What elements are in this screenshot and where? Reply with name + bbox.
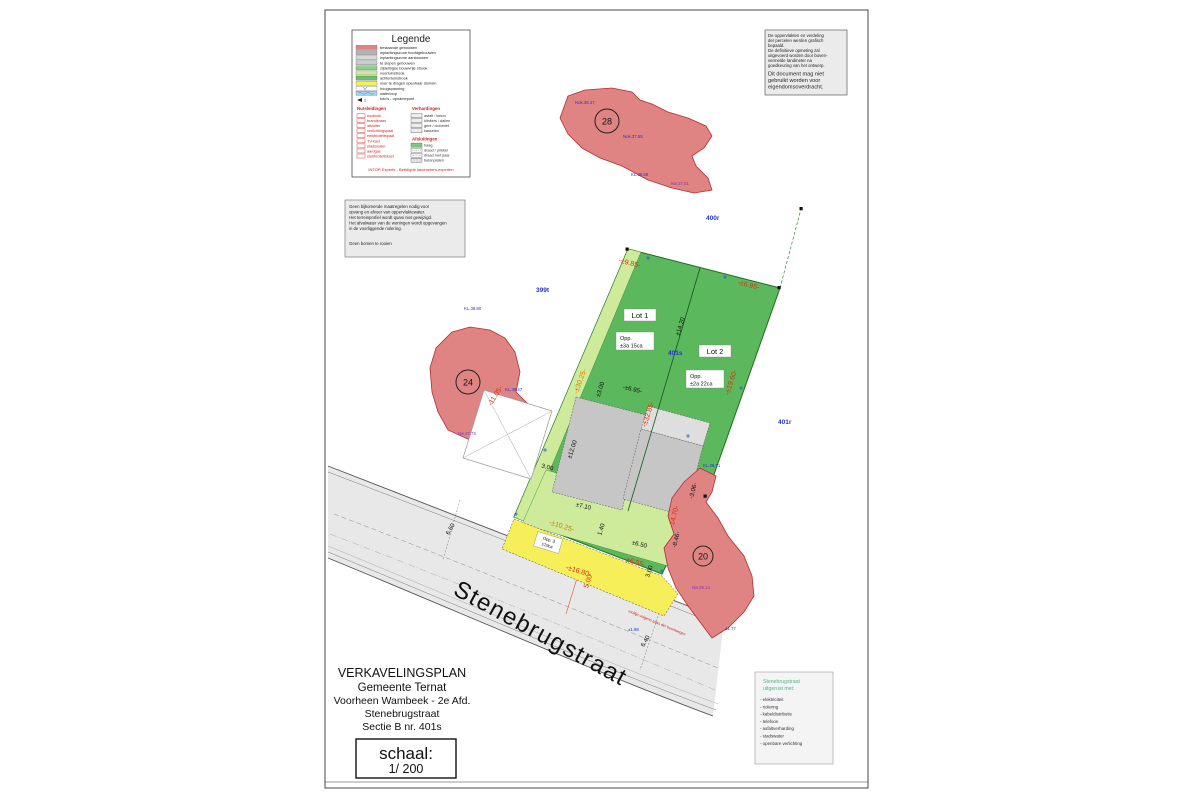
district: Voorheen Wambeek - 2e Afd. [334, 695, 471, 707]
elevation-label: KL.39.88 [631, 172, 649, 177]
utility-label: brandkraan [367, 119, 386, 123]
elevation-label: ±1.98 [628, 627, 639, 632]
utility-icon [357, 144, 365, 148]
elevation-label: KL.38.80 [464, 306, 482, 311]
note-line: opvang en afvoer van oppervlaktewater. [349, 210, 425, 215]
legend-swatch [356, 81, 377, 85]
equipment-item: - asfaltverharding [760, 726, 794, 731]
page: 28 24 20 Lot 1 Opp. ±3a 15ca Lot 2 Opp. … [0, 0, 1200, 800]
utility-icon [357, 134, 365, 138]
equipment-title-1: Stenebrugstraat [763, 679, 800, 685]
note-topright: De oppervlakten en verdeling der percele… [765, 30, 847, 95]
utility-icon [357, 139, 365, 143]
note-line: Het terreinprofiel wordt quasi niet gewi… [349, 215, 432, 220]
surface-icon [411, 119, 422, 123]
equipment-item: - kabeldistributie [760, 712, 793, 717]
utility-label: afsluiter [367, 124, 381, 128]
lot2-area: ±2a 22ca [690, 382, 714, 388]
surface-label: asfalt / beton [424, 114, 446, 118]
warning-line: gebruikt worden voor [768, 78, 820, 84]
cadastral-label: 399t [536, 287, 550, 294]
utility-icon [357, 154, 365, 158]
fence-label: haag [424, 144, 432, 148]
equipment-item: - openbare verlichting [760, 741, 803, 746]
elevation-label: Niv.39.14 [692, 585, 710, 590]
lot2-opp: Opp. [690, 374, 702, 380]
equipment-box: Stenebrugstraat uitgerust met: - elektri… [755, 672, 833, 764]
plan-title: VERKAVELINGSPLAN [338, 666, 466, 680]
legend-title: Legende [392, 34, 431, 45]
elevation-label: Nok.36.47 [575, 100, 595, 105]
legend-swatch [356, 56, 377, 60]
lot1-opp: Opp. [620, 336, 632, 342]
utility-label: aardgas [367, 149, 381, 153]
cadastral-label: 401r [778, 419, 792, 426]
surface-icon [411, 114, 422, 118]
equipment-item: - telefoon [760, 719, 779, 724]
note-line: Geen bijkomende maatregelen nodig voor [349, 204, 430, 209]
note-left: Geen bijkomende maatregelen nodig voor o… [345, 200, 465, 257]
legend-swatch [356, 86, 377, 90]
legend-swatch [356, 61, 377, 65]
utility-label: verlichtingspaal [367, 129, 393, 133]
elevation-label: KL.38.47 [505, 387, 523, 392]
note-line: in de voorliggende riolering. [349, 226, 402, 231]
scale-label: schaal: [379, 744, 433, 763]
elevation-label: Niv.37.01 [671, 181, 689, 186]
equipment-item: - elektriciteit [760, 697, 784, 702]
utility-icon [357, 114, 365, 118]
elevation-label: ±1.77 [725, 626, 736, 631]
utility-label: stadswater [367, 144, 386, 148]
elevation-label: Niv.37.75 [458, 431, 476, 436]
cadastral-label: 400r [706, 215, 720, 222]
legend-swatch [356, 51, 377, 55]
photo-point-number: 1 [364, 98, 366, 103]
utility-icon [357, 129, 365, 133]
legend-swatch [356, 66, 377, 70]
surface-icon [411, 124, 422, 128]
utility-label: TV-kast [367, 139, 381, 143]
equipment-title-2: uitgerust met: [763, 686, 794, 692]
fence-label: draad met paal [424, 154, 449, 158]
legend-label: foto's - opnamepunt [380, 96, 415, 101]
parcel-number: 28 [602, 117, 612, 127]
utility-label: elektriciteitspaal [367, 134, 394, 138]
warning-line: eigendomsoverdracht. [768, 85, 824, 91]
surface-label: grint / dolomiet [424, 124, 450, 128]
utility-icon [357, 149, 365, 153]
street-title: Stenebrugstraat [365, 708, 440, 720]
surface-icon [411, 129, 422, 133]
scale-value: 1/ 200 [389, 762, 424, 776]
lot1-label: Lot 1 [632, 311, 649, 320]
section-number: Sectie B nr. 401s [362, 721, 441, 733]
legend: Legende bestaande gebouwen inplantingszo… [352, 30, 470, 177]
surfaces-header: Verhardingen [412, 106, 440, 111]
fence-label: betonplaten [424, 159, 444, 163]
utility-icon [357, 119, 365, 123]
utility-icon [357, 124, 365, 128]
fence-icon-beton [411, 158, 422, 162]
fence-icon-haag [411, 143, 422, 147]
parcel-number: 20 [698, 552, 708, 562]
utility-label: rioolkolk [367, 114, 381, 118]
equipment-item: - stadswater [760, 734, 784, 739]
fences-header: Afsluitingen [412, 137, 438, 142]
surface-label: kasseien [424, 129, 439, 133]
elevation-label: KL.36.71 [703, 463, 721, 468]
lot1-area: ±3a 15ca [620, 344, 644, 350]
parcel-number: 24 [463, 378, 473, 388]
lot2-label: Lot 2 [707, 347, 724, 356]
equipment-item: - riolering [760, 704, 779, 709]
surface-label: klinkers / dallen [424, 119, 450, 123]
elevation-label: Nok.37.55 [623, 134, 643, 139]
legend-swatch [356, 76, 377, 80]
warning-line: Dit document mag niet [768, 72, 824, 78]
legend-footer: INTOP-Experts - Beëdigde landmeters-expe… [368, 167, 453, 172]
utility-label: elektriciteitskast [367, 154, 395, 158]
plan-canvas: 28 24 20 Lot 1 Opp. ±3a 15ca Lot 2 Opp. … [0, 0, 1200, 800]
legend-swatch [356, 45, 377, 49]
note-line: Geen bomen te rooien [349, 241, 392, 246]
legend-swatch [356, 71, 377, 75]
municipality: Gemeente Ternat [358, 682, 447, 694]
fence-label: draad / prikkel [424, 149, 448, 153]
note-line: Het afvalwater van de woningen wordt opg… [349, 221, 447, 226]
utilities-header: Nutsleidingen [357, 106, 386, 111]
cadastral-label: 401s [668, 350, 683, 357]
note-line: goedkeuring van het ontwerp. [768, 63, 825, 68]
